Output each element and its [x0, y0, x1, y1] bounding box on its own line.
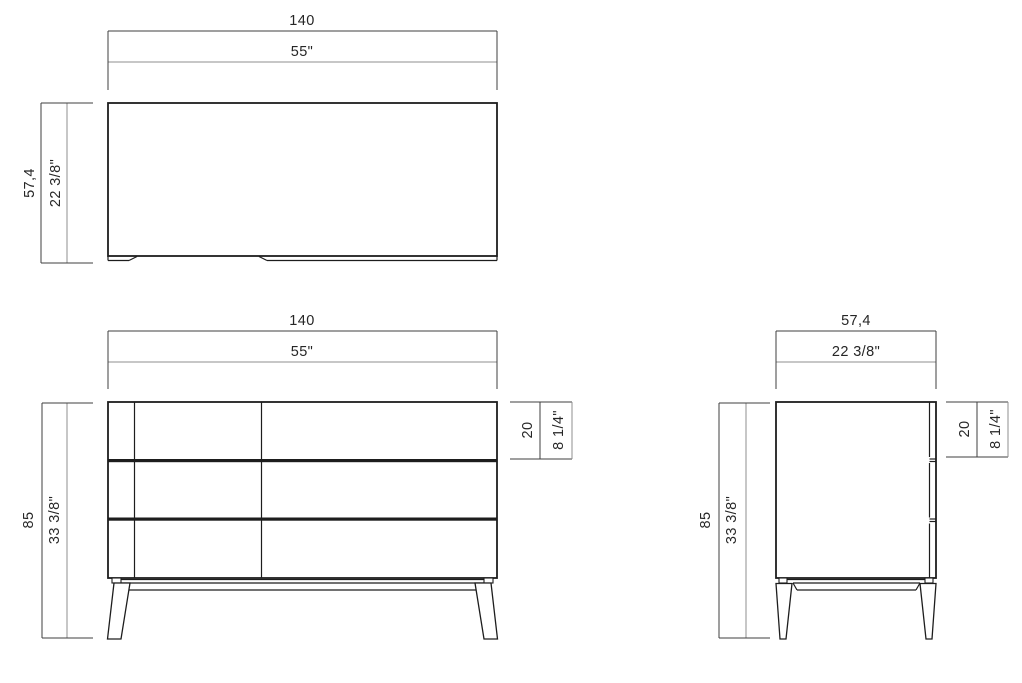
side-view-outline — [776, 402, 936, 578]
side-view-height-inch-label: 33 3/8" — [724, 496, 740, 544]
leg-right — [475, 583, 498, 639]
leg-left — [776, 584, 792, 640]
leg-left — [108, 583, 131, 639]
top-view-width-dimension: 140 55" — [108, 13, 497, 90]
leg-mount-right — [925, 578, 933, 583]
top-view-body — [108, 103, 497, 261]
drawer-gap-2 — [108, 518, 497, 521]
front-view-drawer-inch-label: 8 1/4" — [551, 410, 567, 450]
side-view-height-cm-label: 85 — [698, 512, 714, 529]
front-view-drawer-cm-label: 20 — [520, 422, 536, 439]
side-view-depth-inch-label: 22 3/8" — [832, 344, 880, 360]
top-view-depth-cm-label: 57,4 — [22, 168, 38, 198]
side-view-depth-cm-label: 57,4 — [841, 313, 871, 329]
front-view-drawer-dimension: 20 8 1/4" — [510, 402, 572, 459]
top-view-depth-inch-label: 22 3/8" — [48, 159, 64, 207]
front-view-height-dimension: 85 33 3/8" — [21, 403, 93, 638]
front-view-width-inch-label: 55" — [291, 344, 313, 360]
side-view: 57,4 22 3/8" 85 33 3/8" 20 8 1/4" — [698, 313, 1008, 639]
front-view-outline — [108, 402, 497, 578]
front-edge-notch-right — [259, 257, 267, 261]
leg-mount-right — [484, 578, 493, 583]
side-view-drawer-inch-label: 8 1/4" — [988, 409, 1004, 449]
furniture-dimension-drawing: 140 55" 57,4 22 3/8" 140 — [0, 0, 1022, 683]
side-view-height-dimension: 85 33 3/8" — [698, 403, 770, 638]
drawer-gap-1 — [108, 459, 497, 462]
top-view-width-cm-label: 140 — [289, 13, 314, 29]
side-view-depth-dimension: 57,4 22 3/8" — [776, 313, 936, 389]
front-view-width-dimension: 140 55" — [108, 313, 497, 389]
front-view-body — [108, 402, 497, 578]
front-view: 140 55" 85 33 3/8" 20 8 1/4" — [21, 313, 572, 639]
rail-right-end — [916, 583, 920, 590]
front-view-width-cm-label: 140 — [289, 313, 314, 329]
top-view: 140 55" 57,4 22 3/8" — [22, 13, 497, 263]
side-view-base — [776, 578, 936, 639]
side-view-body — [776, 402, 936, 578]
top-view-width-inch-label: 55" — [291, 44, 313, 60]
front-view-base — [108, 578, 498, 639]
front-view-height-inch-label: 33 3/8" — [47, 496, 63, 544]
rail-left-end — [793, 583, 797, 590]
top-view-depth-dimension: 57,4 22 3/8" — [22, 103, 93, 263]
top-view-outline — [108, 103, 497, 256]
front-view-height-cm-label: 85 — [21, 512, 37, 529]
side-view-drawer-cm-label: 20 — [957, 421, 973, 438]
front-edge-notch-left — [129, 257, 137, 261]
side-view-drawer-dimension: 20 8 1/4" — [946, 402, 1008, 457]
leg-mount-left — [112, 578, 121, 583]
leg-right — [920, 584, 936, 640]
leg-mount-left — [779, 578, 787, 583]
drawing-canvas: 140 55" 57,4 22 3/8" 140 — [0, 0, 1022, 683]
